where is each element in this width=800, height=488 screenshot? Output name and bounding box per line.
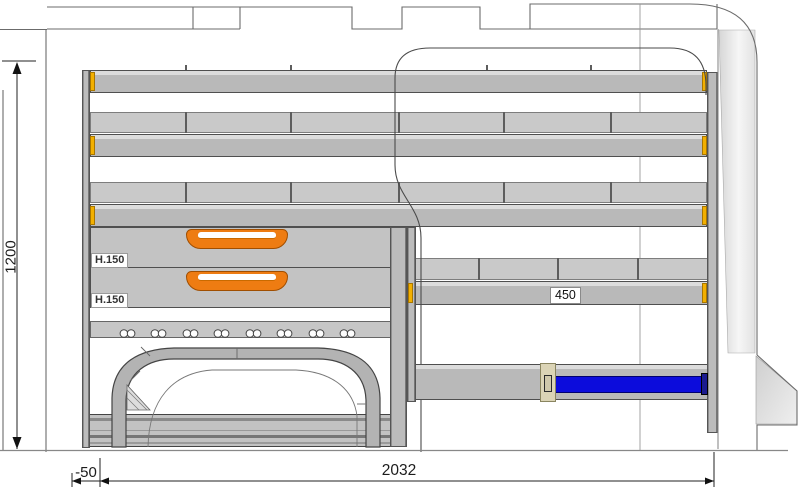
lashing-slot-icon xyxy=(182,325,199,334)
base-rail-line xyxy=(90,430,406,431)
shelf-1-endcap-left xyxy=(90,72,95,91)
shelf-4-divider xyxy=(557,258,559,280)
shelf-4-endcap-right xyxy=(702,283,707,303)
shelf-4-divider xyxy=(637,258,639,280)
lashing-slot-icon xyxy=(245,325,262,334)
technical-drawing-canvas: H.150 H.150 450 xyxy=(0,0,800,488)
shelf-4-divider xyxy=(478,258,480,280)
shelf-3-endcap-right xyxy=(702,206,707,225)
base-rail-line xyxy=(90,435,406,438)
clamp-buckle-latch xyxy=(544,375,552,392)
rack-upright-middle xyxy=(390,227,407,447)
shelf-2-endcap-left xyxy=(90,136,95,155)
ladder-clamp-bar xyxy=(546,376,703,393)
lashing-slot-icon xyxy=(308,325,325,334)
shelf-2-endcap-right xyxy=(702,136,707,155)
shelf-3-divider xyxy=(503,182,505,203)
dimension-length: 2032 xyxy=(374,462,424,480)
drawer-2-handle xyxy=(186,271,288,291)
lashing-slot-icon xyxy=(276,325,293,334)
drawer-1-height-label: H.150 xyxy=(91,253,128,268)
lashing-slot-icon xyxy=(150,325,167,334)
shelf-3-divider xyxy=(290,182,292,203)
drawer-handle-grip-slot xyxy=(198,274,276,281)
shelf-4-endcap-left xyxy=(408,283,413,303)
shelf-1-endcap-right xyxy=(702,72,707,91)
clamp-bar-end-cap xyxy=(701,373,708,395)
lashing-slot-icon xyxy=(119,325,136,334)
clamp-buckle xyxy=(540,363,556,402)
shelf-2-divider xyxy=(290,112,292,133)
rack-end-pillar-right xyxy=(707,72,718,433)
lashing-slot-icon xyxy=(339,325,356,334)
rack-upright-right-unit xyxy=(407,227,416,402)
shelf-3-endcap-left xyxy=(90,206,95,225)
shelf-bracket-tick xyxy=(486,65,488,70)
dimension-height: 1200 xyxy=(3,240,20,273)
shelf-2-divider xyxy=(398,112,400,133)
shelf-bracket-tick xyxy=(290,65,292,70)
lashing-slot-icon xyxy=(213,325,230,334)
shelf-3-divider xyxy=(185,182,187,203)
shelf-3 xyxy=(90,204,707,227)
drawer-2-height-label: H.150 xyxy=(91,293,128,308)
rack-upright-left xyxy=(82,70,90,448)
dimension-offset: -50 xyxy=(68,464,104,481)
base-rail-assembly xyxy=(89,414,407,447)
shelf-bracket-tick xyxy=(590,65,592,70)
rear-door-panel xyxy=(719,30,797,424)
shelf-2-divider xyxy=(503,112,505,133)
shelf-2-divider xyxy=(185,112,187,133)
base-rail-line xyxy=(90,418,406,421)
shelf-bracket-tick xyxy=(185,65,187,70)
drawer-handle-grip-slot xyxy=(198,232,276,239)
drawer-1-handle xyxy=(186,229,288,249)
base-rail-line xyxy=(90,442,406,444)
shelf-3-divider xyxy=(610,182,612,203)
shelf-2 xyxy=(90,134,707,157)
shelf-width-label: 450 xyxy=(550,287,581,304)
shelf-1 xyxy=(90,70,707,93)
shelf-2-divider xyxy=(610,112,612,133)
shelf-3-divider xyxy=(398,182,400,203)
